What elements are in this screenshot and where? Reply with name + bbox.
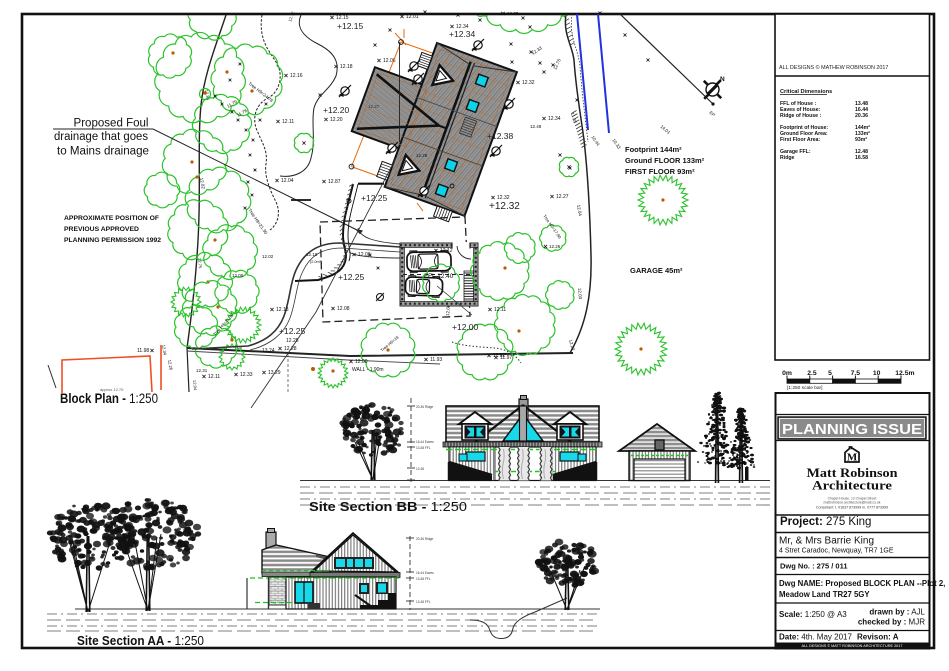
svg-text:16.58: 16.58 [855,155,868,161]
svg-text:11.92: 11.92 [493,353,505,359]
svg-text:11.98: 11.98 [137,348,149,354]
svg-text:12.11: 12.11 [282,119,294,125]
svg-text:Proposed Foul: Proposed Foul [74,118,149,130]
svg-text:PREVIOUS APPROVED: PREVIOUS APPROVED [64,226,139,233]
svg-text:12.31: 12.31 [196,368,208,373]
svg-text:PLANNING PERMISSION 1992: PLANNING PERMISSION 1992 [64,237,161,244]
svg-text:16.44 Eaves: 16.44 Eaves [416,440,434,444]
svg-text:FIRST FLOOR 93m²: FIRST FLOOR 93m² [625,167,695,176]
svg-text:12.04: 12.04 [192,380,198,392]
svg-text:GARAGE 45m²: GARAGE 45m² [630,266,683,275]
svg-text:to Mains drainage: to Mains drainage [57,146,149,158]
svg-text:ALL DESIGNS © MATHEW ROBINSON: ALL DESIGNS © MATHEW ROBINSON 2017 [779,64,888,71]
svg-text:mattrobinson.architecture@mail: mattrobinson.architecture@mail.co.uk [824,501,881,505]
svg-text:12.05: 12.05 [232,273,244,278]
svg-text:13.48 FFL: 13.48 FFL [416,446,431,450]
svg-text:Meadow Land TR27 5GY: Meadow Land TR27 5GY [779,590,870,599]
svg-text:12.28: 12.28 [284,346,297,352]
svg-text:4 Stret Caradoc, Newquay, TR7: 4 Stret Caradoc, Newquay, TR7 1GE [779,548,894,555]
svg-text:13.29: 13.29 [268,370,281,376]
svg-text:Site Section AA - 1:250: Site Section AA - 1:250 [77,634,204,648]
svg-text:checked by : MJR: checked by : MJR [858,618,925,627]
svg-text:M: M [847,451,858,463]
svg-text:Project: 275 King: Project: 275 King [780,516,871,528]
svg-text:12.37: 12.37 [507,11,519,16]
svg-text:Dwg NAME: Proposed BLOCK PLA: Dwg NAME: Proposed BLOCK PLAN --Plot 2, [779,579,945,588]
svg-text:10: 10 [873,370,881,377]
svg-text:Ground FLOOR 133m²: Ground FLOOR 133m² [625,156,705,165]
svg-text:12.16: 12.16 [290,73,303,79]
svg-text:[1:250 scale bar]: [1:250 scale bar] [787,385,822,391]
svg-text:+12.20: +12.20 [323,105,350,115]
svg-text:12.11: 12.11 [208,374,220,380]
svg-text:12.08: 12.08 [358,252,371,258]
svg-text:12.02: 12.02 [262,254,274,259]
svg-text:12.04: 12.04 [281,178,294,184]
svg-text:5: 5 [828,370,832,377]
svg-text:16.44 Eaves: 16.44 Eaves [416,571,434,575]
svg-text:Date: 4th. May 2017: Date: 4th. May 2017 [779,633,852,642]
svg-text:13.48 FFL: 13.48 FFL [416,577,431,581]
svg-text:+12.25: +12.25 [361,193,388,203]
svg-text:12.20: 12.20 [330,117,343,123]
svg-text:12.26: 12.26 [549,244,561,249]
svg-text:Mr, & Mrs Barrie King: Mr, & Mrs Barrie King [779,536,874,547]
svg-text:12.33: 12.33 [240,372,253,378]
svg-text:12.08: 12.08 [337,306,350,312]
svg-text:Architecture: Architecture [812,478,892,493]
svg-text:First Floor Area:: First Floor Area: [780,137,820,143]
svg-text:12.27: 12.27 [556,194,569,200]
svg-text:APPROXIMATE POSITION OF: APPROXIMATE POSITION OF [64,215,159,222]
svg-text:drawn by : AJL: drawn by : AJL [869,608,925,617]
svg-text:12.13: 12.13 [276,307,289,313]
svg-text:11.93: 11.93 [430,357,442,363]
svg-text:2.5: 2.5 [807,370,817,377]
svg-text:Critical Dimensions: Critical Dimensions [780,89,832,95]
svg-text:Footprint 144m²: Footprint 144m² [625,145,682,154]
svg-text:12.10: 12.10 [306,252,318,257]
svg-text:12.48 FFL: 12.48 FFL [416,600,431,604]
svg-text:+12.15: +12.15 [337,21,364,31]
svg-text:PLANNING ISSUE: PLANNING ISSUE [782,421,922,438]
svg-text:20.36 Ridge: 20.36 Ridge [416,537,433,541]
svg-text:+12.00: +12.00 [452,322,479,332]
svg-text:12.48: 12.48 [530,124,542,129]
svg-text:drainage that goes: drainage that goes [54,131,148,143]
svg-text:(2.0m²): (2.0m²) [310,260,323,264]
svg-text:20.36: 20.36 [855,113,868,119]
svg-text:12.28: 12.28 [416,153,428,158]
svg-text:+12.38: +12.38 [487,131,514,141]
svg-text:+12.25: +12.25 [279,326,306,336]
svg-text:12.01: 12.01 [406,14,419,20]
svg-text:12.27: 12.27 [368,104,380,109]
svg-text:12.11: 12.11 [494,307,506,313]
svg-text:Revison: A: Revison: A [857,633,899,642]
svg-text:+12.25: +12.25 [338,272,365,282]
svg-text:Scale: 1:250 @ A3: Scale: 1:250 @ A3 [779,610,847,619]
svg-text:ALL DESIGNS © MATT ROBINSON AR: ALL DESIGNS © MATT ROBINSON ARCHITECTURE… [801,644,902,648]
svg-text:12.03: 12.03 [577,288,583,300]
svg-text:12.5m: 12.5m [895,370,914,377]
svg-text:12.87: 12.87 [328,179,341,185]
svg-text:20.36 Ridge: 20.36 Ridge [416,405,433,409]
svg-text:Consultant: t. 01637 873999 m: Consultant: t. 01637 873999 m. 0777 8739… [816,506,888,510]
svg-text:Ridge: Ridge [780,155,795,161]
svg-text:12.34: 12.34 [548,116,561,122]
svg-text:+12.34: +12.34 [449,29,476,39]
svg-text:Ridge of House :: Ridge of House : [780,113,821,119]
svg-text:WALL - 1.90m: WALL - 1.90m [352,367,384,373]
svg-text:12.48: 12.48 [416,467,424,471]
svg-text:93m²: 93m² [855,137,867,143]
svg-text:12.25: 12.25 [286,338,299,344]
svg-text:+12.32: +12.32 [489,201,520,212]
svg-text:N: N [720,76,725,83]
svg-text:12.18: 12.18 [340,64,353,70]
svg-text:12.32: 12.32 [522,80,535,86]
svg-text:Block Plan - 1:250: Block Plan - 1:250 [60,391,158,406]
svg-text:Dwg No. : 275 / 011: Dwg No. : 275 / 011 [780,562,848,571]
svg-text:13.24: 13.24 [262,348,275,354]
svg-text:Site Section BB - 1:250: Site Section BB - 1:250 [309,500,467,514]
svg-text:12.00: 12.00 [355,359,368,365]
